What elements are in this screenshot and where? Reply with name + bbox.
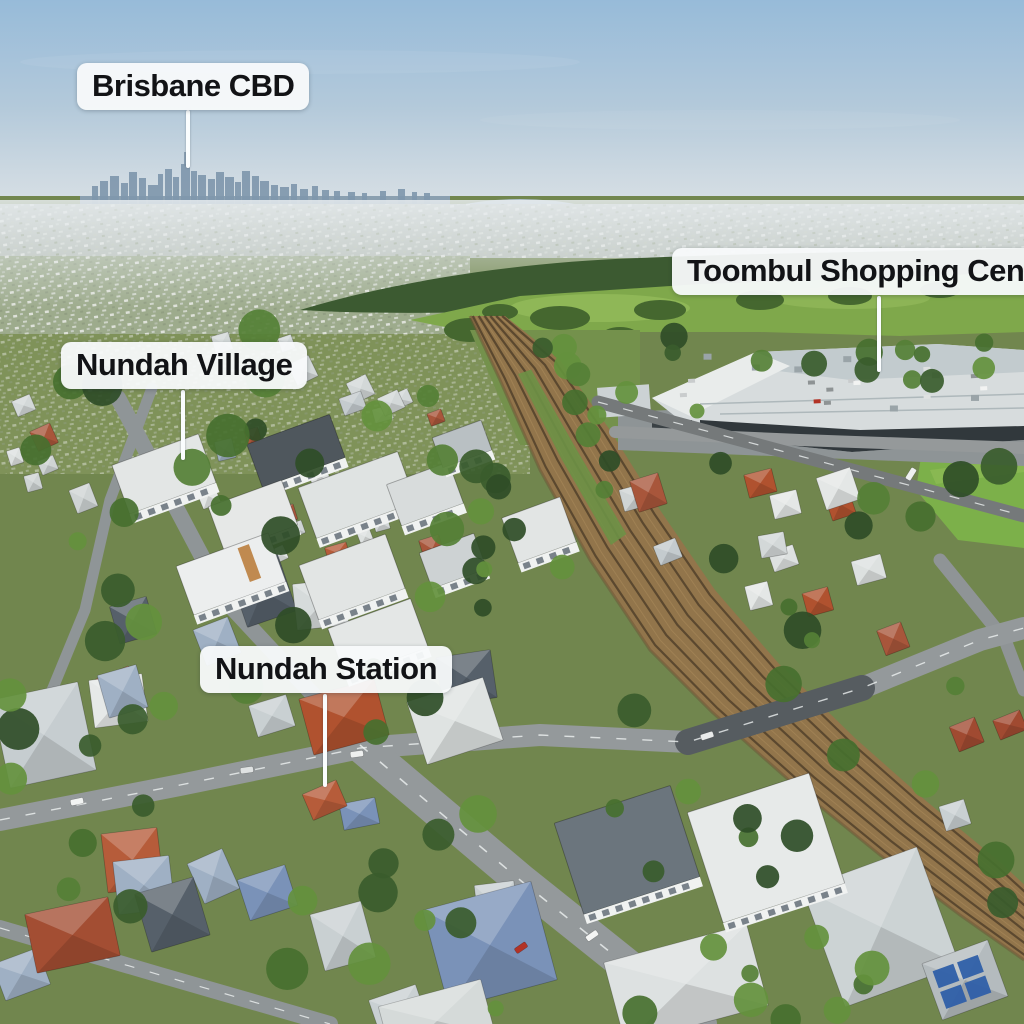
aerial-photo: Brisbane CBD Nundah Village Toombul Shop… — [0, 0, 1024, 1024]
leader-line-toombul-shopping-centre — [877, 296, 881, 372]
leader-line-nundah-station — [323, 694, 327, 787]
label-nundah-village: Nundah Village — [61, 342, 307, 389]
label-brisbane-cbd: Brisbane CBD — [77, 63, 309, 110]
label-toombul-shopping-centre: Toombul Shopping Centre — [672, 248, 1024, 295]
scene-svg — [0, 0, 1024, 1024]
leader-line-brisbane-cbd — [186, 110, 190, 168]
leader-line-nundah-village — [181, 390, 185, 460]
label-nundah-station: Nundah Station — [200, 646, 452, 693]
